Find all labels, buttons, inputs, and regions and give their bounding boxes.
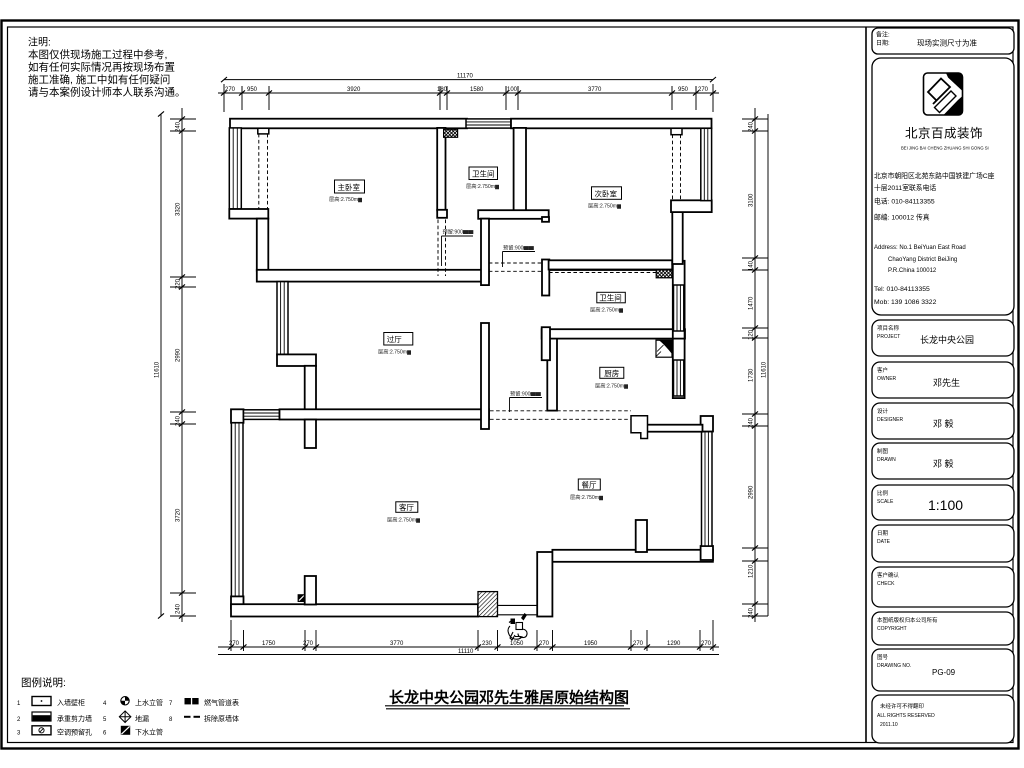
svg-text:3770: 3770 <box>588 87 602 93</box>
svg-text:日期:: 日期: <box>876 39 890 47</box>
svg-text:DESIGNER: DESIGNER <box>877 417 904 423</box>
svg-text:预留:900▆▆: 预留:900▆▆ <box>443 228 475 236</box>
svg-text:120: 120 <box>749 329 755 340</box>
svg-text:950: 950 <box>678 87 689 93</box>
svg-text:Tel: 010-84113355: Tel: 010-84113355 <box>874 286 930 293</box>
svg-text:图例说明:: 图例说明: <box>21 676 66 689</box>
svg-text:邮编: 100012 传真: 邮编: 100012 传真 <box>874 213 930 222</box>
svg-text:客户: 客户 <box>877 366 888 374</box>
svg-text:270: 270 <box>698 87 709 93</box>
svg-text:2990: 2990 <box>176 348 182 362</box>
svg-text:PG-09: PG-09 <box>932 668 956 677</box>
svg-text:BEI JING BAI CHENG ZHUANG SHI: BEI JING BAI CHENG ZHUANG SHI GONG SI <box>901 146 989 151</box>
svg-text:180: 180 <box>437 87 448 93</box>
svg-text:270: 270 <box>701 641 712 647</box>
svg-text:3320: 3320 <box>176 202 182 216</box>
svg-text:层高:2.750m▆: 层高:2.750m▆ <box>570 493 603 501</box>
svg-text:COPYRIGHT: COPYRIGHT <box>877 626 907 632</box>
svg-text:220: 220 <box>176 278 182 289</box>
svg-text:次卧室: 次卧室 <box>595 188 618 198</box>
svg-text:240: 240 <box>749 121 755 132</box>
svg-text:过厅: 过厅 <box>387 334 402 344</box>
svg-text:燃气管道表: 燃气管道表 <box>204 698 239 707</box>
svg-text:ALL RIGHTS RESERVED: ALL RIGHTS RESERVED <box>877 713 935 719</box>
svg-text:ChaoYang District BeiJing: ChaoYang District BeiJing <box>888 257 957 263</box>
svg-text:承重剪力墙: 承重剪力墙 <box>57 714 92 723</box>
svg-text:图号: 图号 <box>877 653 889 661</box>
svg-text:Address: No.1 BeiYuan East Roa: Address: No.1 BeiYuan East Road <box>874 245 966 251</box>
svg-text:电话: 010-84113355: 电话: 010-84113355 <box>874 197 935 206</box>
svg-text:240: 240 <box>176 603 182 614</box>
svg-text:CHECK: CHECK <box>877 581 895 587</box>
svg-text:DRAWN: DRAWN <box>877 457 896 463</box>
svg-text:卫生间: 卫生间 <box>472 169 495 179</box>
svg-text:上水立管: 上水立管 <box>135 698 163 707</box>
svg-text:11610: 11610 <box>155 361 161 378</box>
svg-text:1730: 1730 <box>749 368 755 382</box>
svg-text:PROJECT: PROJECT <box>877 334 900 340</box>
svg-text:Mob: 139 1086 3322: Mob: 139 1086 3322 <box>874 299 937 306</box>
svg-text:层高:2.750m▆: 层高:2.750m▆ <box>590 306 623 314</box>
svg-text:地漏: 地漏 <box>135 714 149 723</box>
svg-text:空调预留孔: 空调预留孔 <box>57 728 92 737</box>
svg-text:餐厅: 餐厅 <box>582 481 597 490</box>
svg-text:层高:2.750m▆: 层高:2.750m▆ <box>466 182 499 190</box>
svg-text:2990: 2990 <box>749 485 755 499</box>
svg-text:140: 140 <box>749 260 755 271</box>
svg-text:层高:2.750m▆: 层高:2.750m▆ <box>378 348 411 356</box>
svg-text:270: 270 <box>539 641 550 647</box>
svg-text:施工准确, 施工中如有任何疑问: 施工准确, 施工中如有任何疑问 <box>28 73 170 86</box>
svg-text:1470: 1470 <box>749 296 755 310</box>
svg-text:预留:900▆▆: 预留:900▆▆ <box>503 244 535 252</box>
svg-text:240: 240 <box>176 121 182 132</box>
svg-text:厨房: 厨房 <box>604 368 619 378</box>
svg-text:2011.10: 2011.10 <box>880 722 898 728</box>
svg-text:DATE: DATE <box>877 539 891 545</box>
svg-text:3720: 3720 <box>176 508 182 522</box>
svg-text:设计: 设计 <box>877 407 889 415</box>
svg-text:如有任何实际情况再按现场布置: 如有任何实际情况再按现场布置 <box>28 61 175 74</box>
svg-text:270: 270 <box>225 87 236 93</box>
svg-text:本图仅供现场施工过程中参考,: 本图仅供现场施工过程中参考, <box>28 48 167 61</box>
svg-text:1050: 1050 <box>510 641 524 647</box>
svg-text:邓先生: 邓先生 <box>933 377 960 388</box>
svg-text:制图: 制图 <box>877 447 889 455</box>
svg-text:SCALE: SCALE <box>877 499 894 505</box>
svg-text:卫生间: 卫生间 <box>599 293 622 303</box>
svg-text:现场实测尺寸为准: 现场实测尺寸为准 <box>917 38 977 48</box>
svg-text:240: 240 <box>749 607 755 618</box>
svg-text:DRAWING NO.: DRAWING NO. <box>877 663 911 669</box>
svg-text:240: 240 <box>749 417 755 428</box>
svg-text:100: 100 <box>507 87 518 93</box>
svg-text:3770: 3770 <box>390 641 404 647</box>
svg-text:1580: 1580 <box>470 87 484 93</box>
svg-text:230: 230 <box>482 641 493 647</box>
svg-text:主卧室: 主卧室 <box>338 182 361 192</box>
svg-text:270: 270 <box>303 641 314 647</box>
svg-text:北京百成装饰: 北京百成装饰 <box>905 127 983 141</box>
svg-text:长龙中央公园邓先生雅居原始结构图: 长龙中央公园邓先生雅居原始结构图 <box>389 689 629 707</box>
svg-text:P.R.China 100012: P.R.China 100012 <box>888 268 937 274</box>
svg-text:客户确认: 客户确认 <box>877 571 900 579</box>
svg-text:1210: 1210 <box>749 564 755 578</box>
svg-text:层高:2.750m▆: 层高:2.750m▆ <box>595 382 628 390</box>
svg-text:邓 毅: 邓 毅 <box>933 418 954 429</box>
svg-text:邓 毅: 邓 毅 <box>933 458 954 469</box>
svg-text:11610: 11610 <box>762 361 768 378</box>
svg-text:3920: 3920 <box>347 87 361 93</box>
svg-text:270: 270 <box>633 641 644 647</box>
svg-text:客厅: 客厅 <box>399 502 414 512</box>
svg-text:长龙中央公园: 长龙中央公园 <box>920 334 974 345</box>
svg-text:注明:: 注明: <box>28 36 51 49</box>
svg-text:240: 240 <box>176 415 182 426</box>
svg-text:北京市朝阳区北苑东路中国铁建广场C座: 北京市朝阳区北苑东路中国铁建广场C座 <box>874 171 995 180</box>
svg-text:十层2011室联系电话: 十层2011室联系电话 <box>874 183 936 192</box>
svg-text:11110: 11110 <box>458 649 474 655</box>
svg-text:入墙壁柜: 入墙壁柜 <box>57 698 85 707</box>
svg-text:3100: 3100 <box>749 193 755 207</box>
svg-text:950: 950 <box>247 87 258 93</box>
svg-text:OWNER: OWNER <box>877 376 897 382</box>
svg-text:层高:2.750m▆: 层高:2.750m▆ <box>329 195 362 203</box>
svg-text:层高:2.750m▆: 层高:2.750m▆ <box>387 516 420 524</box>
svg-text:11170: 11170 <box>457 74 473 80</box>
svg-text:预留:900▆▆: 预留:900▆▆ <box>510 390 542 398</box>
svg-text:本图纸版权归本公司所有: 本图纸版权归本公司所有 <box>877 616 938 624</box>
svg-text:1290: 1290 <box>667 641 681 647</box>
svg-text:备注:: 备注: <box>876 31 890 39</box>
svg-text:1750: 1750 <box>262 641 276 647</box>
svg-text:270: 270 <box>229 641 240 647</box>
svg-text:下水立管: 下水立管 <box>135 728 163 737</box>
svg-text:拆除原墙体: 拆除原墙体 <box>204 714 239 723</box>
svg-text:日期: 日期 <box>877 530 889 537</box>
svg-text:1950: 1950 <box>584 641 598 647</box>
svg-text:比例: 比例 <box>877 489 889 497</box>
svg-text:1:100: 1:100 <box>928 497 963 513</box>
svg-text:未经许可不得翻印: 未经许可不得翻印 <box>880 702 925 710</box>
svg-text:请与本案例设计师本人联系沟通。: 请与本案例设计师本人联系沟通。 <box>28 86 186 99</box>
svg-text:层高:2.750m▆: 层高:2.750m▆ <box>588 202 621 210</box>
svg-text:项目名称: 项目名称 <box>877 324 900 332</box>
